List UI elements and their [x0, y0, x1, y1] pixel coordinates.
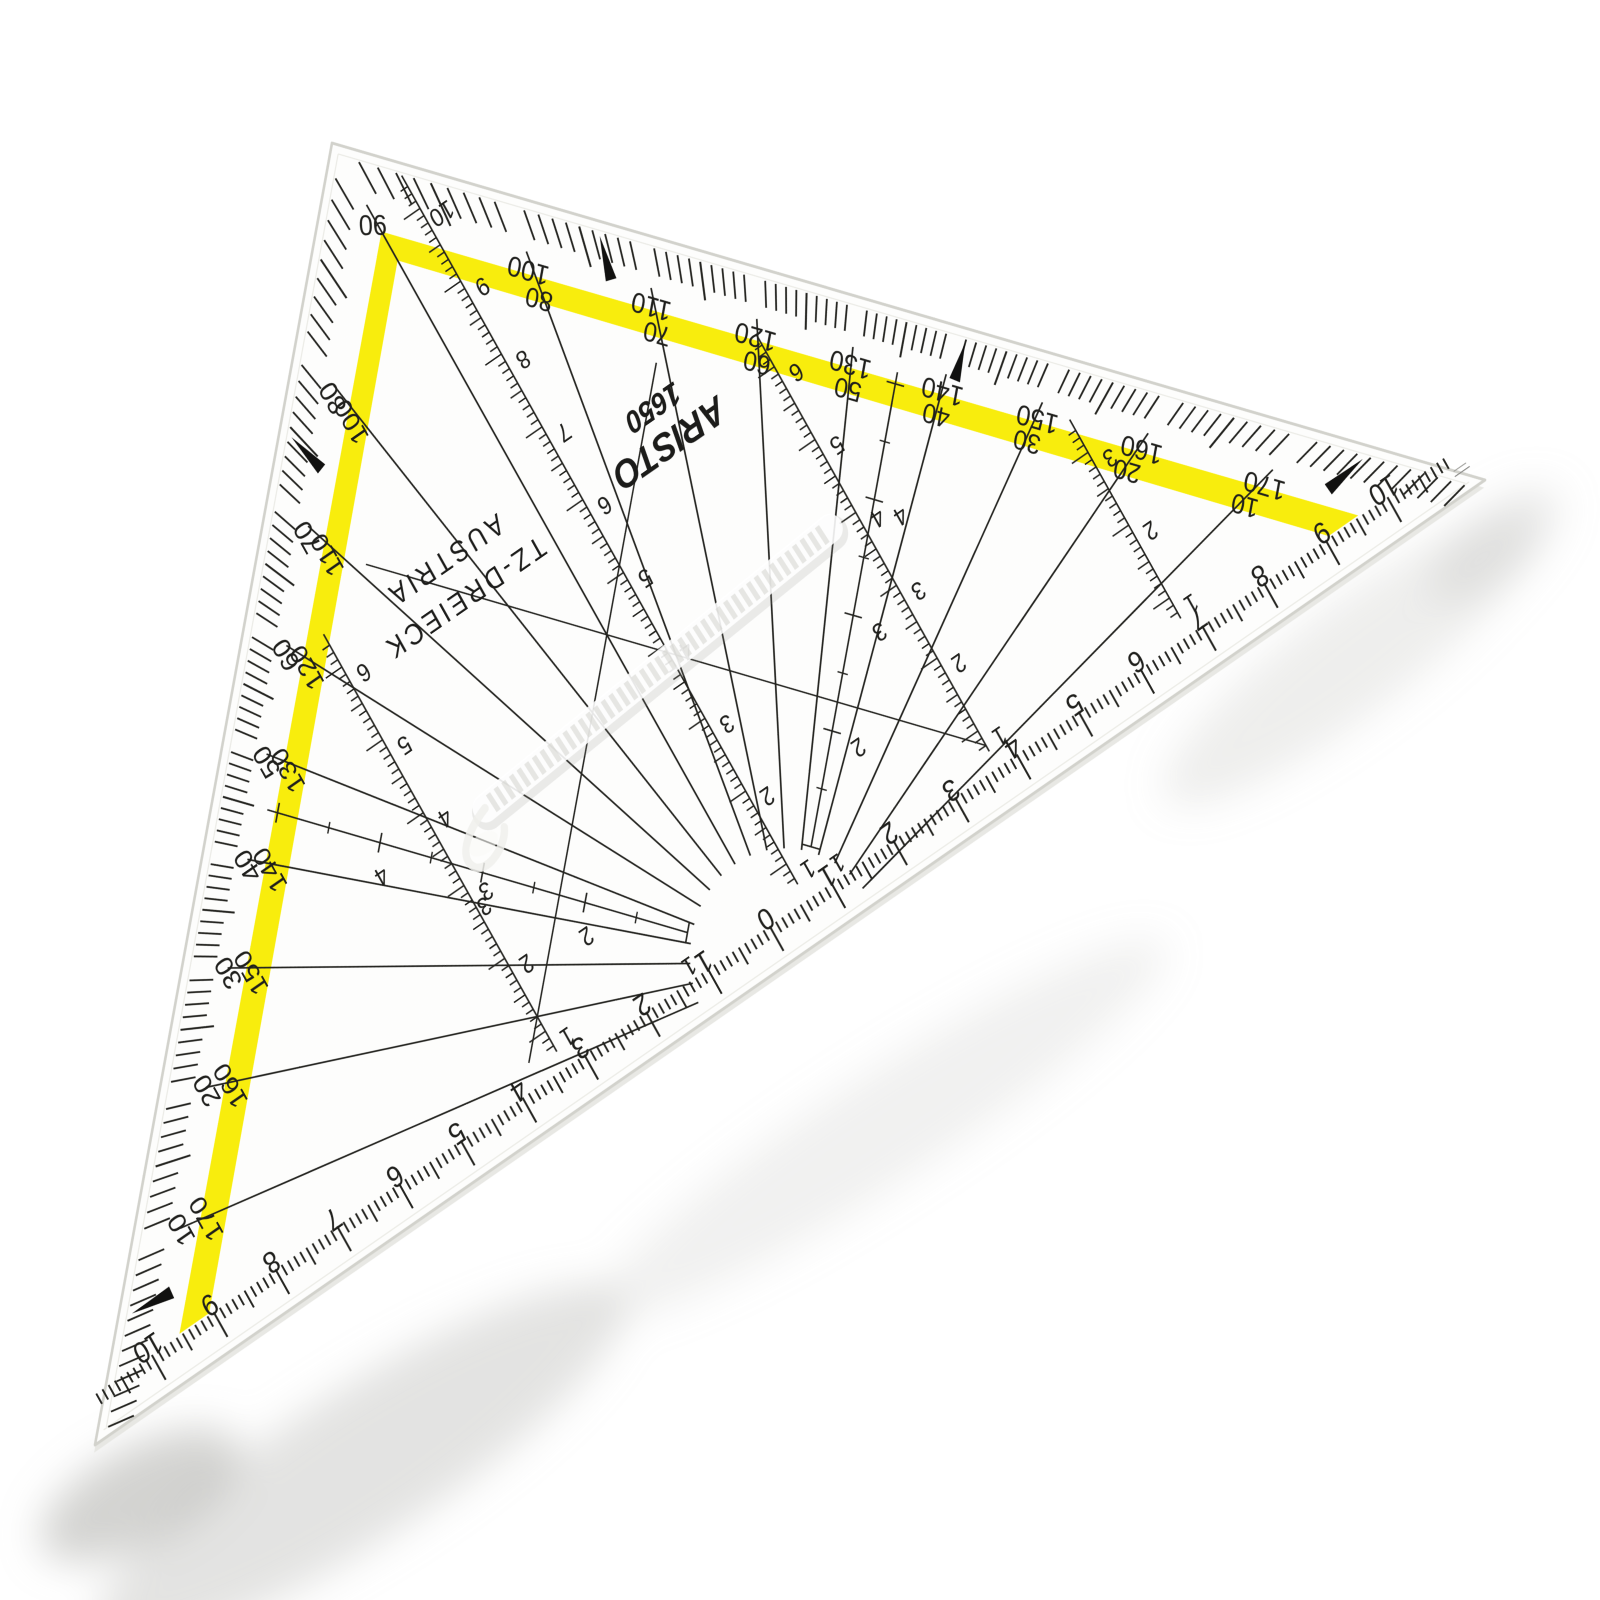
inner-degree-label: 60: [741, 344, 773, 383]
outer-degree-label: 90: [358, 209, 388, 241]
ruler-tick: [96, 1394, 102, 1404]
inner-degree-label: 50: [832, 370, 864, 409]
product-photo-stage: 12341234 12345678910123456123123456 0112…: [0, 0, 1600, 1600]
inner-degree-label: 70: [641, 315, 673, 354]
inner-degree-label: 20: [1111, 452, 1143, 491]
set-square-photo: 12341234 12345678910123456123123456 0112…: [0, 0, 1600, 1600]
inner-degree-label: 40: [920, 396, 952, 435]
inner-degree-label: 80: [523, 280, 555, 319]
inner-degree-label: 10: [1229, 486, 1261, 525]
inner-degree-label: 30: [1011, 423, 1043, 462]
